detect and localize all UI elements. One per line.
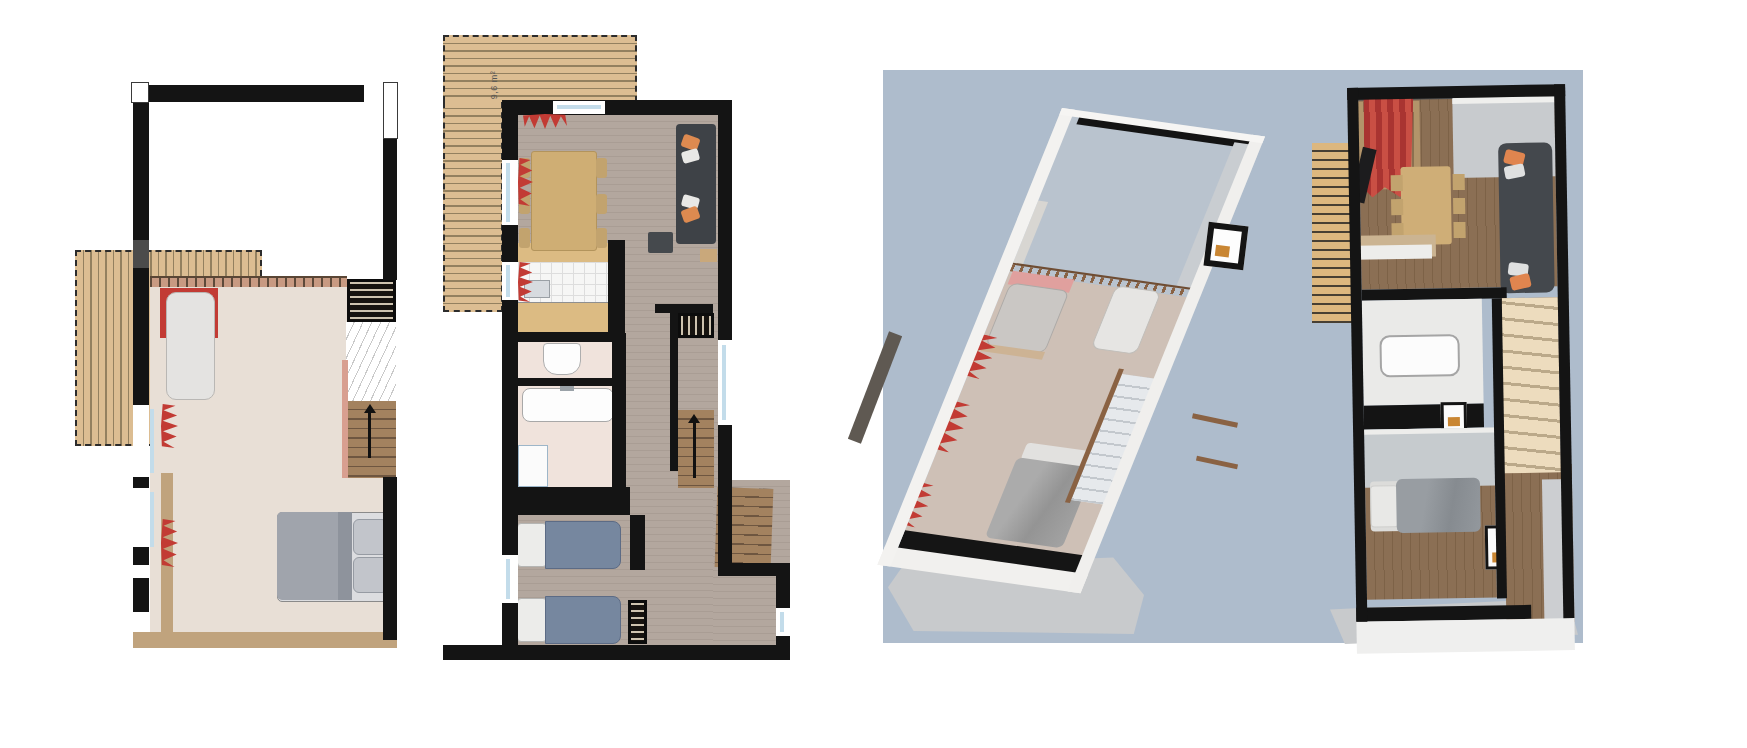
u2-bed-pillow (1370, 485, 1399, 527)
u2-chair (1391, 199, 1403, 215)
wardrobe-closet (347, 279, 396, 323)
coffee-table (648, 232, 673, 253)
m-window-1 (502, 160, 518, 225)
corner-post-tl (131, 82, 149, 103)
u2-stairwell (1501, 297, 1561, 473)
m-window-3-glass (506, 559, 510, 599)
toilet (543, 343, 581, 375)
render-unit-right (1347, 84, 1575, 654)
chair (596, 194, 607, 214)
dining-table (531, 151, 597, 251)
m-wall-wc-bath (503, 378, 625, 386)
m-wall-stairwell (670, 313, 678, 471)
deck-side (443, 102, 503, 312)
u2-chair (1453, 174, 1465, 190)
m-wall-top (503, 100, 725, 115)
bathroom-floor-2 (548, 445, 618, 487)
side-table (700, 249, 717, 262)
wall-left-mullion (133, 477, 149, 488)
u2-bathtub (1379, 334, 1460, 377)
m-window-2-glass (506, 265, 510, 297)
deck-area-label-box: 9,6 m² (474, 46, 514, 86)
window-opening-2 (133, 488, 149, 547)
u2-stairs (1501, 297, 1561, 473)
u2-chair (1453, 222, 1465, 238)
m-wall-right-2 (718, 425, 732, 575)
u2-sideboard-top (1356, 244, 1432, 259)
m-window-3 (502, 555, 518, 603)
single-bed-1-pillow (517, 523, 547, 567)
bathtub (522, 388, 614, 422)
chair (519, 228, 530, 248)
wall-left-mid (133, 268, 149, 405)
m-window-2 (502, 262, 518, 300)
chair (596, 228, 607, 248)
entry-closet (678, 313, 714, 338)
stair-newel (342, 360, 348, 478)
stair-arrow-stem (368, 412, 371, 458)
m-wall-left-2 (502, 225, 518, 262)
m-window-top-glass (557, 105, 601, 109)
m-window-1-glass (506, 163, 510, 222)
m-wall-right-1 (718, 100, 732, 340)
u2-base-white (1356, 618, 1575, 654)
duvet-fold (338, 512, 352, 600)
wall-top (149, 85, 364, 102)
wall-left-lower-2 (133, 578, 149, 612)
winder-stairs (346, 322, 396, 401)
deck-area-label: 9,6 m² (489, 71, 499, 100)
deck-top (443, 35, 637, 102)
single-bed-1-duvet (545, 521, 621, 569)
wall-left-lower-1 (133, 547, 149, 565)
wall-left-upper (133, 103, 149, 240)
floorplan-scene: 9,6 m² (0, 0, 1747, 748)
rug-edge-bottom (133, 632, 397, 648)
m-wall-bath-hall (612, 333, 626, 487)
kitchen-cabinet-lower (518, 302, 608, 333)
single-bed-2-duvet (545, 596, 621, 644)
window-glass-1 (150, 409, 154, 473)
niche-wood-item (1215, 245, 1230, 258)
m-wall-bath-bedroom (503, 487, 630, 515)
wall-left-gray-segment (133, 240, 149, 268)
u2-chair (1453, 198, 1465, 214)
u2-niche-1-item (1448, 417, 1460, 426)
chair (596, 158, 607, 178)
m-wall-bottom (443, 645, 790, 660)
bathtub-faucet (560, 386, 574, 391)
stairwell-niche-box (1203, 222, 1248, 271)
corner-post-tr (383, 82, 398, 139)
stairs-mid-arrow (688, 414, 700, 423)
stairs-mid-arrow-stem (693, 423, 696, 478)
chaise-longue (166, 292, 215, 400)
u2-bed-duvet (1396, 478, 1481, 533)
u2-dining-table (1400, 166, 1451, 245)
m-wall-step-right-1 (776, 563, 790, 608)
m-wall-kitchen-hall (608, 240, 625, 334)
loft-railing (150, 276, 347, 287)
wall-right-upper (383, 139, 397, 280)
m-wall-kitchen-wc (503, 332, 625, 342)
m-wall-bedroom-hall (630, 515, 645, 570)
single-bed-2-pillow (517, 598, 547, 642)
bedroom-closet (628, 600, 647, 644)
wall-right-lower (383, 477, 397, 640)
m-wall-closet-band (655, 304, 713, 313)
shower (518, 445, 548, 487)
m-window-right-glass (722, 345, 726, 420)
u2-chair (1391, 175, 1403, 191)
m-window-step-glass (780, 612, 784, 632)
window-glass-2 (150, 492, 154, 547)
m-wall-left-1 (502, 100, 518, 160)
window-opening-1 (133, 405, 149, 477)
